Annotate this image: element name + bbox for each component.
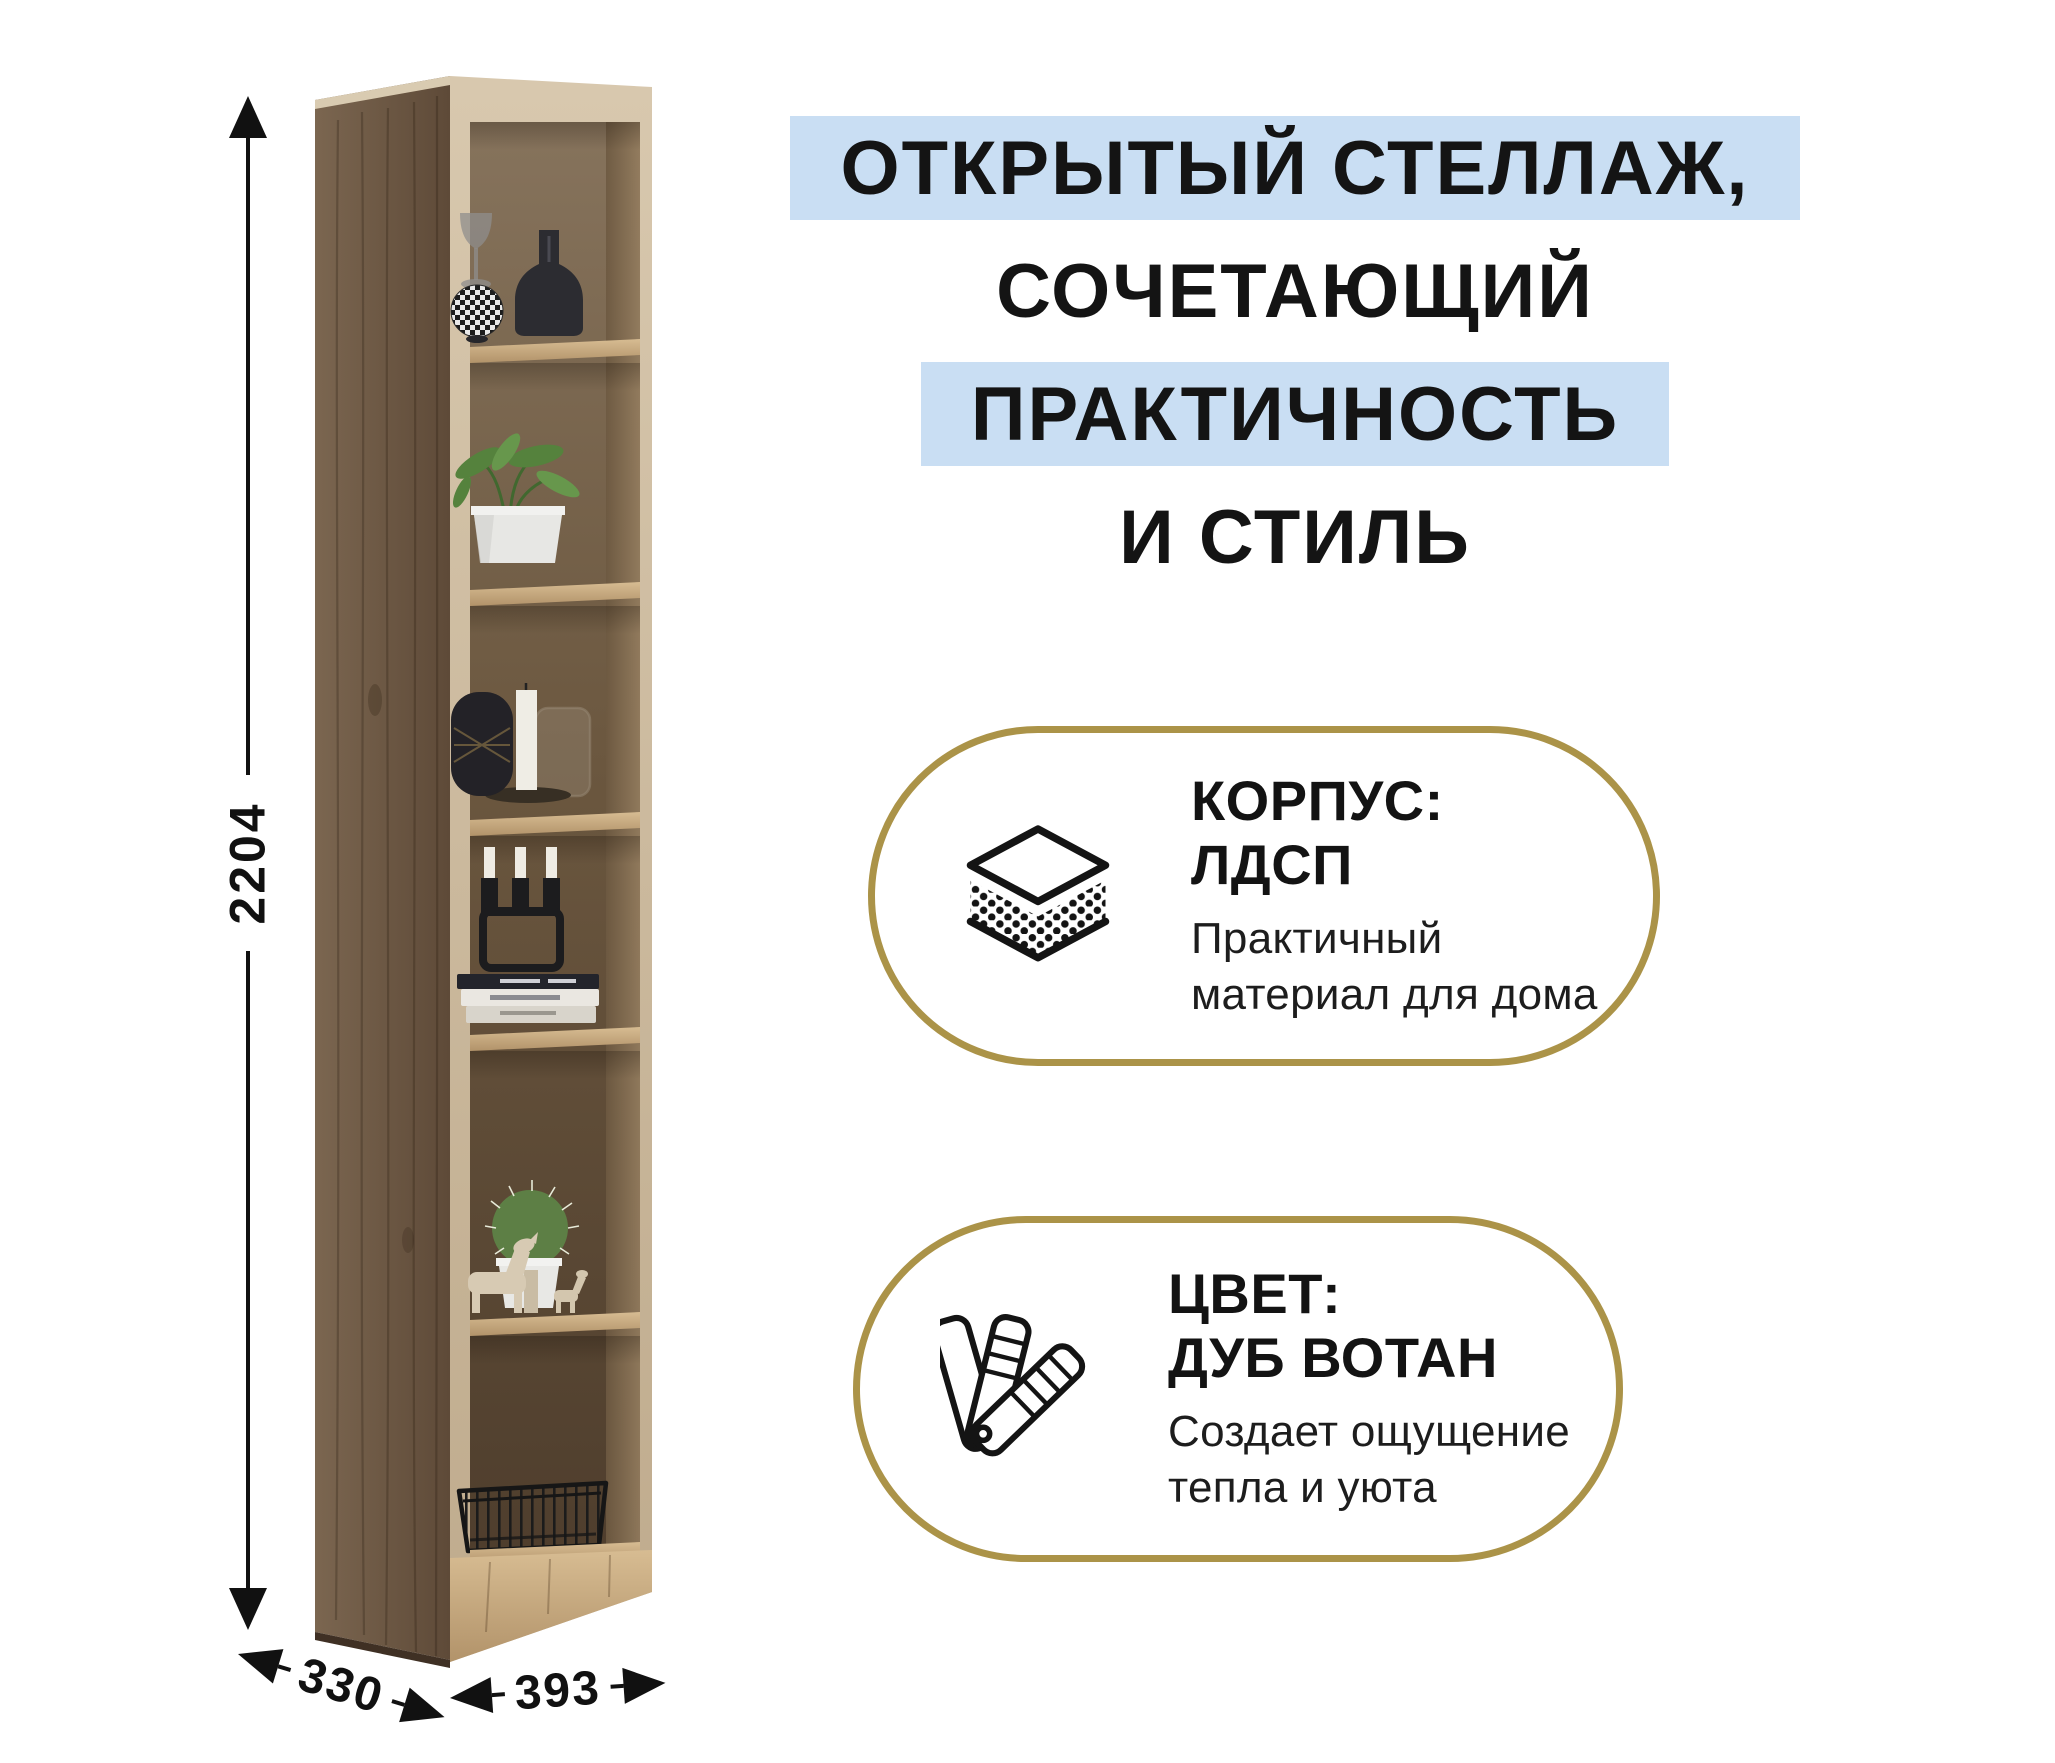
arrow-right-icon: [622, 1665, 666, 1704]
arrow-left-icon: [233, 1637, 284, 1684]
arrow-left-icon: [449, 1677, 493, 1716]
height-value: 2204: [219, 801, 277, 924]
headline: ОТКРЫТЫЙ СТЕЛЛАЖ, СОЧЕТАЮЩИЙ ПРАКТИЧНОСТ…: [640, 116, 1950, 608]
card-subtitle: Практичный материал для дома: [1191, 911, 1613, 1023]
headline-line-4: И СТИЛЬ: [640, 485, 1950, 589]
card-subtitle: Создает ощущение тепла и уюта: [1168, 1404, 1570, 1516]
width-value: 393: [503, 1659, 613, 1721]
plinth: [450, 1550, 652, 1662]
headline-line-1: ОТКРЫТЫЙ СТЕЛЛАЖ,: [640, 116, 1950, 220]
headline-line-3: ПРАКТИЧНОСТЬ: [640, 362, 1950, 466]
layers-chipboard-icon: [963, 824, 1113, 969]
height-dimension: 2204: [219, 96, 277, 1630]
side-panel: [315, 76, 450, 1660]
card-title: ЦВЕТ: ДУБ ВОТАН: [1168, 1262, 1570, 1390]
color-swatches-fan-icon: [940, 1304, 1090, 1474]
headline-line-2: СОЧЕТАЮЩИЙ: [640, 239, 1950, 343]
material-card: КОРПУС: ЛДСП Практичный материал для дом…: [868, 726, 1660, 1066]
decor-wire-basket: [459, 1483, 606, 1551]
arrow-down-icon: [229, 1588, 267, 1630]
product-infographic: 2204 330 393 ОТКРЫТЫЙ СТЕЛЛАЖ, СОЧЕТАЮЩИ…: [0, 0, 2055, 1763]
arrow-right-icon: [399, 1688, 450, 1735]
color-card: ЦВЕТ: ДУБ ВОТАН Создает ощущение тепла и…: [853, 1216, 1623, 1562]
card-title: КОРПУС: ЛДСП: [1191, 769, 1613, 897]
arrow-up-icon: [229, 96, 267, 138]
